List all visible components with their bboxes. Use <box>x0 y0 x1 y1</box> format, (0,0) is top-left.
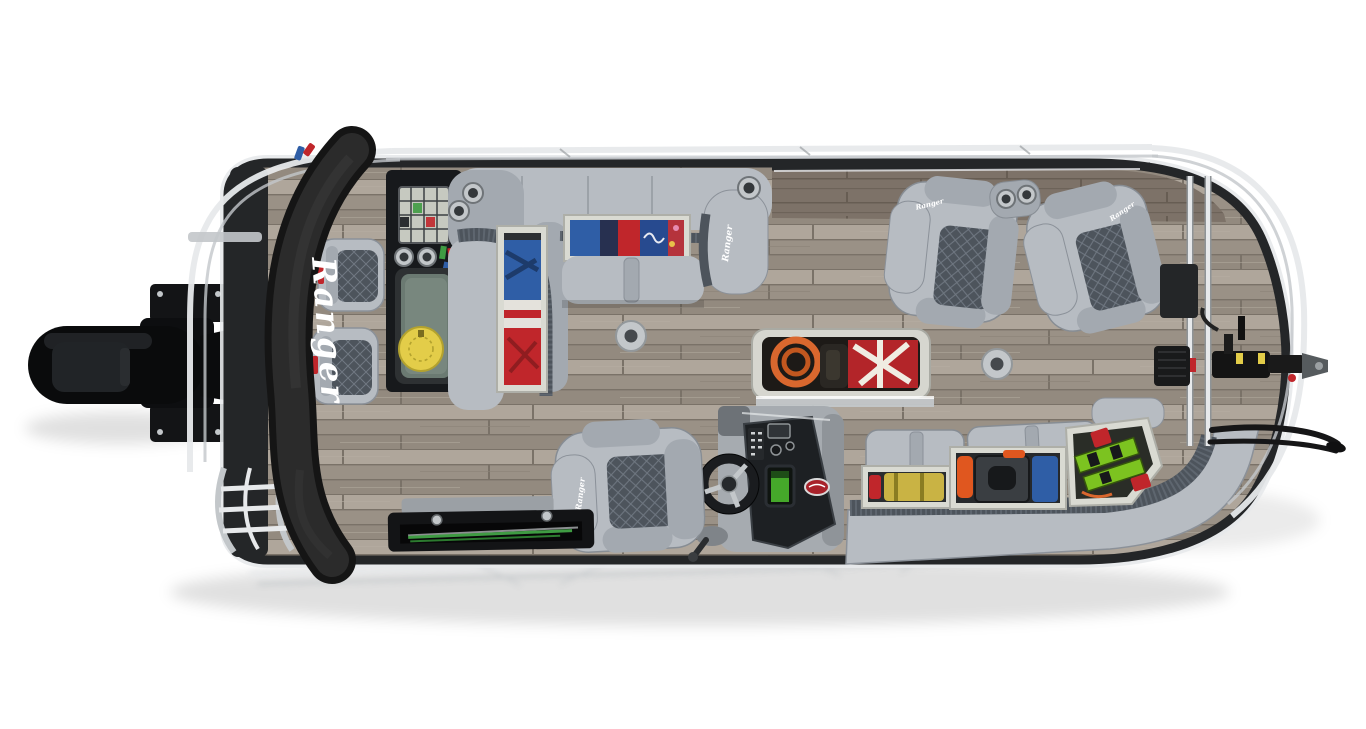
ski-locker <box>752 329 934 407</box>
gate-sticker <box>1190 358 1196 372</box>
studio-photo: Ranger Ranger R <box>0 0 1366 729</box>
underseat-storage-vests <box>497 226 547 392</box>
ranger-helm-badge <box>805 479 829 495</box>
locker-lid <box>756 398 934 407</box>
underseat-storage-gear <box>950 447 1066 509</box>
bow-cupholder-pod <box>988 178 1041 219</box>
table-base-ring-2 <box>982 349 1012 379</box>
gate-panel <box>1160 264 1198 318</box>
trolling-motor-mount <box>1154 346 1190 386</box>
stern-wall <box>230 167 268 557</box>
gps-screen <box>766 466 794 506</box>
underseat-storage-towels <box>564 215 690 261</box>
livewell <box>395 268 457 384</box>
pontoon-boat-overhead: Ranger Ranger R <box>0 0 1366 729</box>
table-base-ring-1 <box>616 321 646 351</box>
underseat-storage-yellow <box>862 466 952 508</box>
